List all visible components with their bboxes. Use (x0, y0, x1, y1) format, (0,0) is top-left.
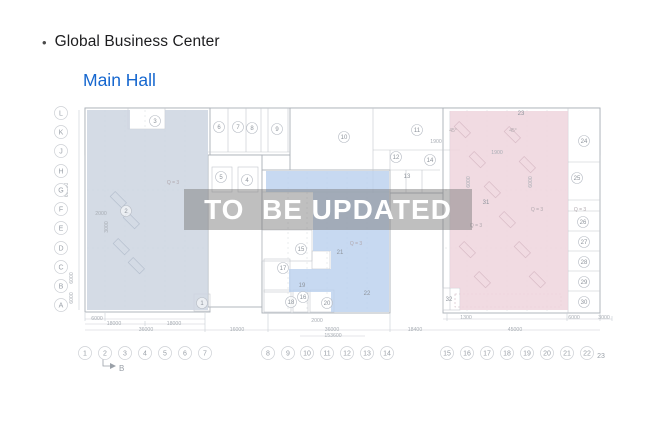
svg-text:A: A (59, 302, 64, 309)
room-label-20: 20 (322, 298, 333, 309)
col-axis-label-13: 13 (361, 347, 374, 360)
svg-text:26: 26 (580, 220, 587, 226)
watermark-overlay: TO BE UPDATED (184, 189, 472, 230)
room-label-14: 14 (425, 155, 436, 166)
note-label: 45° (449, 128, 457, 134)
row-axis-label-B: B (55, 280, 68, 293)
note-label: Q = 3 (531, 207, 544, 213)
room-label-27: 27 (579, 237, 590, 248)
svg-text:17: 17 (483, 350, 491, 357)
column-axis: 1234567891011121314151617181920212223 (79, 347, 605, 361)
svg-text:F: F (59, 206, 63, 213)
note-label: Q = 3 (167, 180, 180, 186)
room-label-12: 12 (391, 152, 402, 163)
svg-text:18: 18 (288, 300, 295, 306)
svg-text:1: 1 (83, 350, 87, 357)
room-label-11: 11 (412, 125, 423, 136)
svg-text:J: J (59, 148, 63, 155)
svg-text:4: 4 (143, 350, 147, 357)
dimension-label: 36000 (139, 327, 154, 333)
svg-text:21: 21 (563, 350, 571, 357)
col-axis-label-8: 8 (262, 347, 275, 360)
row-axis-label-E: E (55, 222, 68, 235)
col-axis-label-14: 14 (381, 347, 394, 360)
svg-text:30: 30 (581, 300, 588, 306)
floor-plan: B 12345678910111213141516171819202122232… (0, 0, 660, 440)
dimension-label: 18400 (408, 327, 423, 333)
svg-text:20: 20 (324, 301, 331, 307)
dimension-label: 6000 (69, 292, 75, 304)
svg-text:11: 11 (323, 350, 330, 357)
dimension-label: 6000 (528, 176, 534, 188)
dimension-label: 16000 (230, 327, 245, 333)
svg-text:9: 9 (286, 350, 290, 357)
row-axis-label-G: G (55, 184, 68, 197)
svg-text:25: 25 (574, 176, 581, 182)
svg-text:19: 19 (523, 350, 531, 357)
room-label-22: 22 (364, 291, 371, 297)
svg-text:17: 17 (280, 266, 287, 272)
dimension-label: 6000 (91, 316, 103, 322)
dimension-label: 3000 (598, 315, 610, 321)
room-label-16: 16 (298, 292, 309, 303)
col-axis-label-4: 4 (139, 347, 152, 360)
col-axis-label-21: 21 (561, 347, 574, 360)
room-label-23: 23 (518, 111, 525, 117)
svg-text:13: 13 (404, 174, 411, 180)
svg-text:E: E (59, 225, 64, 232)
dimension-label: 153600 (324, 333, 341, 339)
room-label-15: 15 (296, 244, 307, 255)
svg-text:G: G (58, 187, 63, 194)
col-axis-label-23: 23 (597, 353, 605, 360)
room-label-21: 21 (337, 250, 344, 256)
dimension-label: 1900 (430, 139, 442, 145)
room-label-2: 2 (121, 206, 132, 217)
room-label-8: 8 (247, 123, 258, 134)
svg-text:18: 18 (503, 350, 511, 357)
col-axis-label-22: 22 (581, 347, 594, 360)
watermark-text: TO BE UPDATED (204, 196, 452, 224)
dimension-label: 1300 (460, 315, 472, 321)
svg-text:6: 6 (183, 350, 187, 357)
dimension-label: 6000 (466, 176, 472, 188)
col-axis-label-3: 3 (119, 347, 132, 360)
room-label-28: 28 (579, 257, 590, 268)
svg-text:10: 10 (303, 350, 311, 357)
room-label-17: 17 (278, 263, 289, 274)
row-axis: LKJHGFEDCBA (55, 107, 68, 312)
dimension-label: 45000 (508, 327, 523, 333)
note-label: Q = 3 (350, 241, 363, 247)
svg-text:K: K (59, 129, 64, 136)
row-axis-label-A: A (55, 299, 68, 312)
room-label-26: 26 (578, 217, 589, 228)
section-arrow-icon (110, 363, 116, 369)
row-axis-label-K: K (55, 126, 68, 139)
svg-text:20: 20 (543, 350, 551, 357)
dimension-label: 6000 (69, 272, 75, 284)
svg-text:15: 15 (443, 350, 451, 357)
col-axis-label-2: 2 (99, 347, 112, 360)
dimension-label: 6000 (568, 315, 580, 321)
room-label-10: 10 (339, 132, 350, 143)
room-label-31: 31 (483, 200, 490, 206)
row-axis-label-J: J (55, 145, 68, 158)
col-axis-label-18: 18 (501, 347, 514, 360)
svg-text:5: 5 (163, 350, 167, 357)
dimension-label: 3000 (104, 221, 110, 233)
svg-text:H: H (58, 168, 63, 175)
svg-text:23: 23 (518, 111, 525, 117)
note-label: 45° (509, 128, 517, 134)
dimension-label: 1900 (491, 150, 503, 156)
svg-text:12: 12 (343, 350, 351, 357)
svg-text:19: 19 (299, 283, 306, 289)
room-label-29: 29 (579, 277, 590, 288)
room-label-18: 18 (286, 297, 297, 308)
col-axis-label-7: 7 (199, 347, 212, 360)
row-axis-label-L: L (55, 107, 68, 120)
dimension-label: 2000 (95, 211, 107, 217)
svg-text:7: 7 (203, 350, 207, 357)
svg-text:29: 29 (581, 280, 588, 286)
room-label-1: 1 (197, 298, 208, 309)
room-label-24: 24 (579, 136, 590, 147)
room-label-13: 13 (404, 174, 411, 180)
svg-text:27: 27 (581, 240, 588, 246)
row-axis-label-H: H (55, 165, 68, 178)
svg-text:32: 32 (446, 297, 453, 303)
svg-text:D: D (58, 245, 63, 252)
svg-text:15: 15 (298, 247, 305, 253)
col-axis-label-20: 20 (541, 347, 554, 360)
room-label-25: 25 (572, 173, 583, 184)
col-axis-label-11: 11 (321, 347, 334, 360)
col-axis-label-6: 6 (179, 347, 192, 360)
svg-text:L: L (59, 110, 63, 117)
page: • Global Business Center Main Hall (0, 0, 660, 440)
svg-text:28: 28 (581, 260, 588, 266)
col-axis-label-19: 19 (521, 347, 534, 360)
svg-text:8: 8 (266, 350, 270, 357)
row-axis-label-F: F (55, 203, 68, 216)
room-label-6: 6 (214, 122, 225, 133)
room-label-32: 32 (446, 297, 453, 303)
col-axis-label-15: 15 (441, 347, 454, 360)
svg-text:22: 22 (583, 350, 591, 357)
room-label-4: 4 (242, 175, 253, 186)
svg-text:13: 13 (363, 350, 371, 357)
dimension-label: 18000 (167, 321, 182, 327)
room-label-19: 19 (299, 283, 306, 289)
col-axis-label-5: 5 (159, 347, 172, 360)
svg-text:14: 14 (383, 350, 391, 357)
svg-text:2: 2 (103, 350, 107, 357)
room-label-9: 9 (272, 124, 283, 135)
svg-text:31: 31 (483, 200, 490, 206)
svg-text:12: 12 (393, 155, 400, 161)
svg-text:C: C (58, 264, 63, 271)
section-marker-label: B (119, 364, 124, 373)
svg-text:16: 16 (463, 350, 471, 357)
dimension-label: 2000 (311, 318, 323, 324)
svg-text:11: 11 (414, 128, 421, 134)
svg-text:16: 16 (300, 295, 307, 301)
row-axis-label-D: D (55, 242, 68, 255)
svg-text:10: 10 (341, 135, 348, 141)
room-label-30: 30 (579, 297, 590, 308)
col-axis-label-17: 17 (481, 347, 494, 360)
room-label-5: 5 (216, 172, 227, 183)
dimension-label: 18000 (107, 321, 122, 327)
svg-text:14: 14 (427, 158, 434, 164)
svg-text:21: 21 (337, 250, 344, 256)
col-axis-label-1: 1 (79, 347, 92, 360)
row-axis-label-C: C (55, 261, 68, 274)
svg-text:3: 3 (123, 350, 127, 357)
svg-text:24: 24 (581, 139, 588, 145)
col-axis-label-9: 9 (282, 347, 295, 360)
note-label: Q = 3 (574, 207, 587, 213)
col-axis-label-12: 12 (341, 347, 354, 360)
col-axis-label-10: 10 (301, 347, 314, 360)
col-axis-label-16: 16 (461, 347, 474, 360)
svg-text:22: 22 (364, 291, 371, 297)
room-label-7: 7 (233, 122, 244, 133)
svg-text:B: B (59, 283, 64, 290)
room-label-3: 3 (150, 116, 161, 127)
